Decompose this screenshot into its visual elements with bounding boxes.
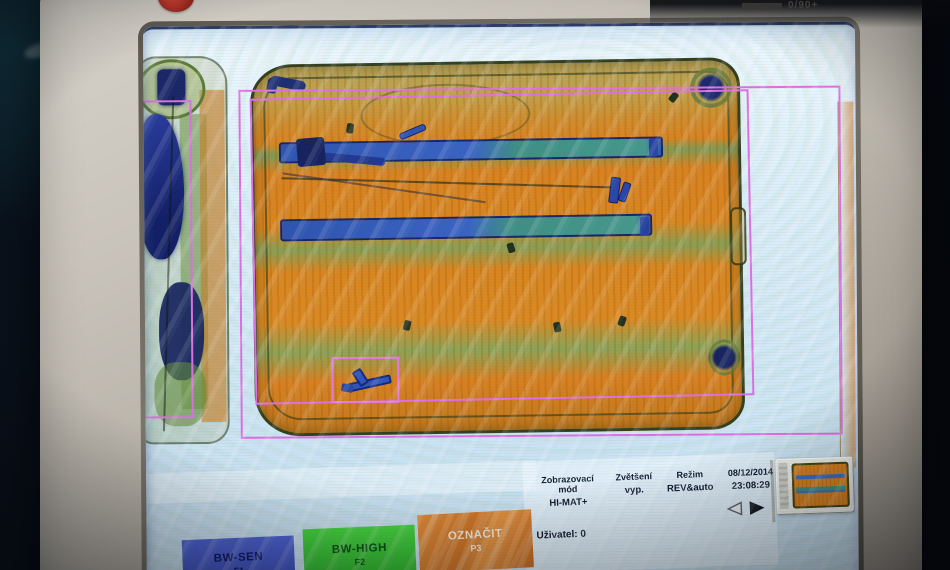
bezel-marking: 0/90+ [742,0,818,11]
next-image-icon[interactable] [748,501,766,516]
panel-ridge [146,460,537,504]
zoom-value: vyp. [612,484,658,497]
detection-frame-left-bag [143,100,194,419]
bw-high-label: BW-HIGH [332,542,387,556]
thumbnail-bar-2 [796,486,845,492]
bw-sen-label: BW-SEN [214,551,264,565]
monitor-photo: Zobrazovací mód HI-MAT+ Zvětšení vyp. Re… [0,0,950,570]
bw-high-key: F2 [354,557,365,567]
previous-image-icon[interactable] [726,501,744,516]
bag-thumbnail-panel[interactable] [775,457,855,516]
brand-logo [158,0,194,12]
oznacit-label: OZNAČIT [448,528,503,543]
screen-rim: Zobrazovací mód HI-MAT+ Zvětšení vyp. Re… [138,16,864,570]
thumbnail-strip [778,463,789,509]
mode-value: REV&auto [665,482,716,495]
mode-label: Režim [664,469,715,481]
time-value: 23:08:29 [723,479,778,492]
detection-frame-suitcase [250,89,755,405]
bw-sen-key: F1 [234,566,245,570]
oznacit-button[interactable]: OZNAČIT P3 [417,509,534,570]
field-zoom: Zvětšení vyp. [611,471,657,507]
pistol-trigger-guard [341,383,354,393]
field-datetime: 08/12/2014 23:08:29 [723,466,779,502]
zoom-label: Zvětšení [611,471,657,483]
field-display-mode: Zobrazovací mód HI-MAT+ [532,473,605,510]
bw-sen-button[interactable]: BW-SEN F1 [182,536,296,570]
xray-screen: Zobrazovací mód HI-MAT+ Zvětšení vyp. Re… [143,22,859,570]
field-mode: Režim REV&auto [664,469,716,505]
bag-orange-strip [199,90,226,422]
date-value: 08/12/2014 [723,466,778,478]
monitor-bezel: Zobrazovací mód HI-MAT+ Zvětšení vyp. Re… [40,0,922,570]
bag-thumbnail-image [791,462,849,509]
oznacit-key: P3 [470,543,482,554]
pistol-shaped-object [341,367,393,397]
bw-high-button[interactable]: BW-HIGH F2 [303,525,417,570]
image-navigation [726,501,766,516]
thumbnail-bar-1 [796,474,845,480]
user-status: Uživatel: 0 [536,529,586,542]
display-mode-label: Zobrazovací mód [532,473,604,496]
